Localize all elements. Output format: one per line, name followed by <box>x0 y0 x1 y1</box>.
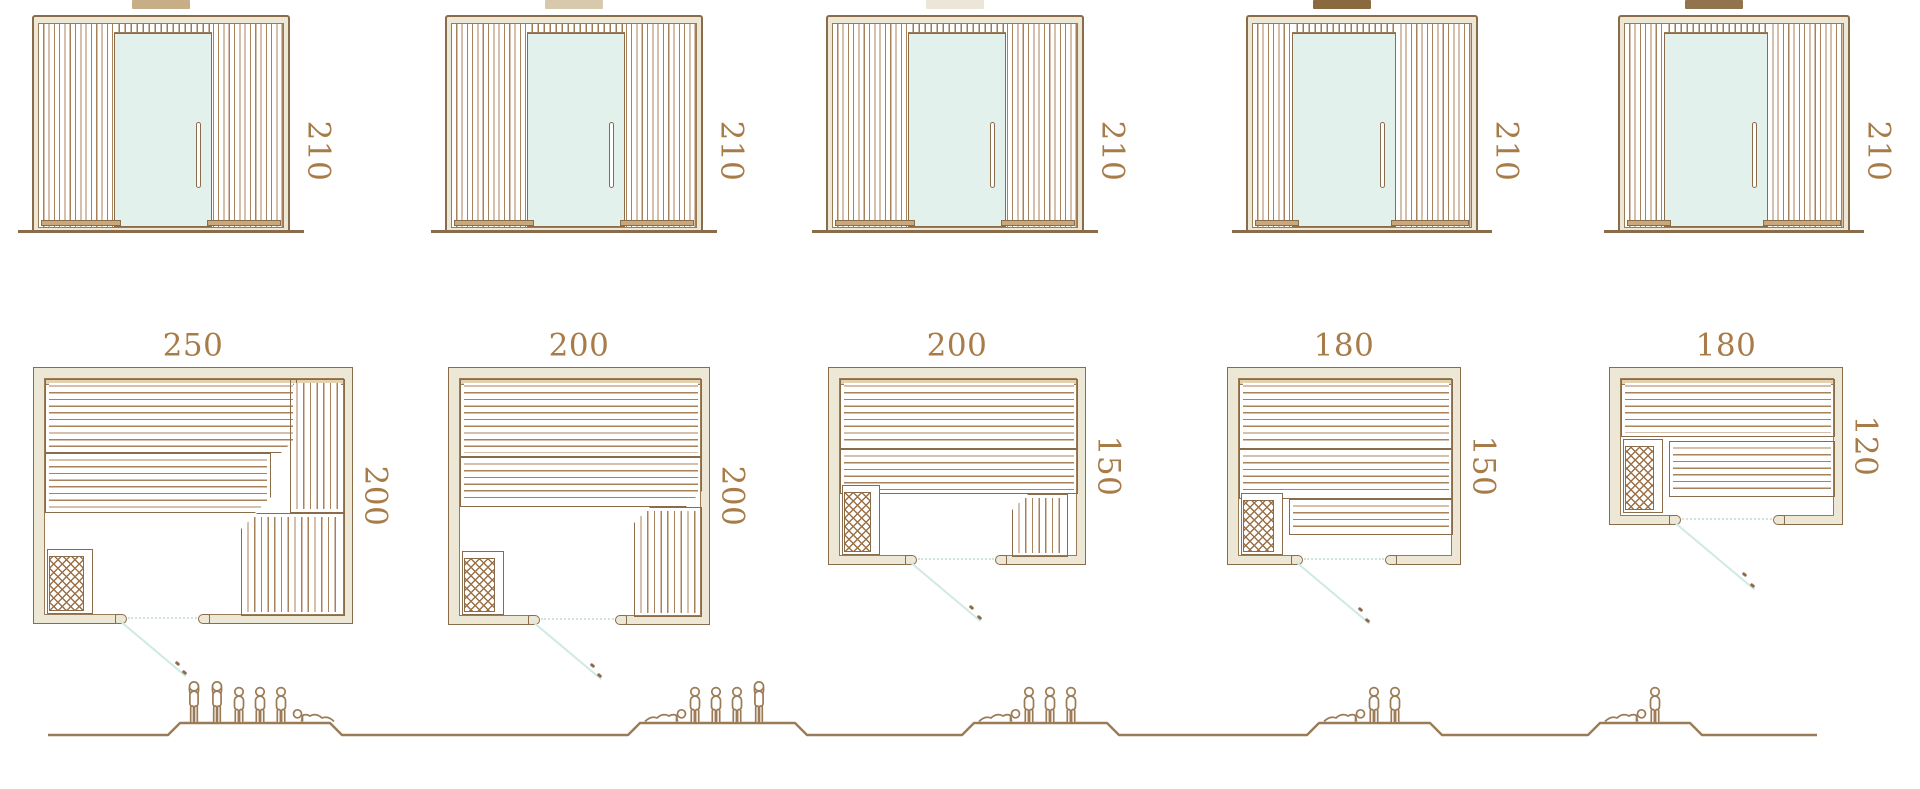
height-dimension: 210 <box>1863 121 1894 182</box>
bench <box>241 513 345 616</box>
wood-swatch <box>926 0 984 9</box>
wall-end-cap <box>615 615 627 625</box>
bench <box>1239 379 1453 449</box>
width-dimension: 180 <box>1696 331 1757 362</box>
person-standing-icon <box>189 682 198 723</box>
floor-plan-5 <box>1609 367 1843 525</box>
plan-interior <box>1238 378 1452 556</box>
plan-interior <box>459 378 701 616</box>
height-dimension: 210 <box>1491 121 1522 182</box>
bench <box>460 457 702 507</box>
width-dimension: 200 <box>549 331 610 362</box>
bench <box>45 453 271 513</box>
elevation-interior <box>832 23 1078 228</box>
person-lying-icon <box>979 710 1020 722</box>
door-swing-line <box>1673 521 1755 590</box>
elevation-1 <box>32 15 290 232</box>
door-track-icon <box>1664 24 1768 33</box>
door-track-icon <box>1292 24 1396 33</box>
person-seated-icon <box>733 688 742 723</box>
base-plinth <box>207 220 281 226</box>
door-open-dotted-line <box>128 617 197 619</box>
depth-dimension: 150 <box>1468 436 1499 497</box>
person-seated-icon <box>1067 688 1076 723</box>
elevation-interior <box>1624 23 1844 228</box>
door-open-dotted-line <box>1304 558 1384 560</box>
door-handle <box>990 122 995 188</box>
floor-plan-1 <box>33 367 353 624</box>
depth-dimension: 200 <box>717 466 748 527</box>
heater <box>1623 439 1663 513</box>
person-seated-icon <box>1025 688 1034 723</box>
elevation-4 <box>1246 15 1478 232</box>
capacity-baseline <box>48 723 1817 735</box>
bench <box>45 379 297 453</box>
base-plinth <box>620 220 694 226</box>
floor-plan-2 <box>448 367 710 625</box>
person-seated-icon <box>1370 688 1379 723</box>
elevation-interior <box>451 23 697 228</box>
height-dimension: 210 <box>303 121 334 182</box>
base-plinth <box>1255 220 1299 226</box>
floor-plan-4 <box>1227 367 1461 565</box>
heater-icon <box>844 492 871 552</box>
door-swing-line <box>909 561 981 622</box>
door-swing-line <box>1295 561 1370 624</box>
bench <box>634 507 702 617</box>
wall-end-cap <box>198 614 210 624</box>
door-opening <box>906 554 1006 567</box>
depth-dimension: 150 <box>1093 436 1124 497</box>
elevation-3 <box>826 15 1084 232</box>
capacity-group-2 <box>645 682 764 723</box>
wood-swatch <box>545 0 603 9</box>
person-seated-icon <box>1391 688 1400 723</box>
base-plinth <box>1001 220 1075 226</box>
door-track-icon <box>114 24 212 33</box>
height-dimension: 210 <box>716 121 747 182</box>
height-dimension: 210 <box>1097 121 1128 182</box>
heater-icon <box>49 556 84 611</box>
door-open-dotted-line <box>541 618 614 620</box>
person-lying-icon <box>1324 710 1365 722</box>
base-plinth <box>835 220 915 226</box>
base-plinth <box>454 220 534 226</box>
heater <box>47 549 93 614</box>
base-plinth <box>1763 220 1841 226</box>
person-seated-icon <box>712 688 721 723</box>
person-seated-icon <box>256 688 265 723</box>
heater-icon <box>1243 500 1274 552</box>
bench <box>1012 494 1068 557</box>
elevation-2 <box>445 15 703 232</box>
depth-dimension: 200 <box>360 465 391 526</box>
door-handle <box>1380 122 1385 188</box>
wall-end-cap <box>1385 555 1397 565</box>
wall-end-cap <box>1773 515 1785 525</box>
plan-interior <box>839 378 1077 556</box>
width-dimension: 200 <box>927 331 988 362</box>
person-standing-icon <box>212 682 221 723</box>
door-opening <box>1292 554 1396 567</box>
floor-plan-3 <box>828 367 1086 565</box>
heater <box>1241 493 1283 555</box>
plan-interior <box>1620 378 1834 516</box>
door-handle <box>1752 122 1757 188</box>
capacity-group-3 <box>979 688 1076 723</box>
heater <box>842 485 880 555</box>
person-seated-icon <box>1651 688 1660 723</box>
heater-icon <box>464 558 495 612</box>
heater-icon <box>1625 446 1654 510</box>
capacity-group-4 <box>1324 688 1400 723</box>
capacity-row <box>0 660 1920 789</box>
swing-handle-dot <box>1357 607 1363 613</box>
person-lying-icon <box>645 710 686 722</box>
sauna-size-drawing: 2102502002102002002102001502101801502101… <box>0 0 1920 789</box>
capacity-group-1 <box>189 682 334 723</box>
wood-swatch <box>132 0 190 9</box>
person-seated-icon <box>277 688 286 723</box>
door-open-dotted-line <box>1682 518 1772 520</box>
width-dimension: 250 <box>163 331 224 362</box>
heater <box>462 551 504 615</box>
person-seated-icon <box>691 688 700 723</box>
bench <box>840 379 1078 449</box>
person-standing-icon <box>754 682 763 723</box>
bench <box>1669 441 1835 497</box>
capacity-group-5 <box>1605 688 1660 723</box>
door-handle <box>196 122 201 188</box>
elevation-5 <box>1618 15 1850 232</box>
wood-swatch <box>1685 0 1743 9</box>
person-lying-icon <box>294 710 335 722</box>
person-lying-icon <box>1605 710 1646 722</box>
door-opening <box>116 613 209 626</box>
depth-dimension: 120 <box>1850 416 1881 477</box>
bench <box>460 379 702 457</box>
base-plinth <box>1391 220 1469 226</box>
bench <box>1239 449 1453 499</box>
door-open-dotted-line <box>918 558 994 560</box>
door-opening <box>1670 514 1784 527</box>
swing-handle-dot <box>1741 572 1747 578</box>
wall-end-cap <box>995 555 1007 565</box>
elevation-interior <box>1252 23 1472 228</box>
bench <box>1289 499 1453 535</box>
base-plinth <box>1627 220 1671 226</box>
door-track-icon <box>908 24 1006 33</box>
elevation-interior <box>38 23 284 228</box>
person-seated-icon <box>235 688 244 723</box>
door-opening <box>529 614 626 627</box>
swing-handle-dot <box>969 605 975 611</box>
plan-interior <box>44 378 344 615</box>
bench <box>1621 379 1835 437</box>
door-handle <box>609 122 614 188</box>
width-dimension: 180 <box>1314 331 1375 362</box>
wood-swatch <box>1313 0 1371 9</box>
base-plinth <box>41 220 121 226</box>
person-seated-icon <box>1046 688 1055 723</box>
bench <box>290 379 345 513</box>
door-track-icon <box>527 24 625 33</box>
